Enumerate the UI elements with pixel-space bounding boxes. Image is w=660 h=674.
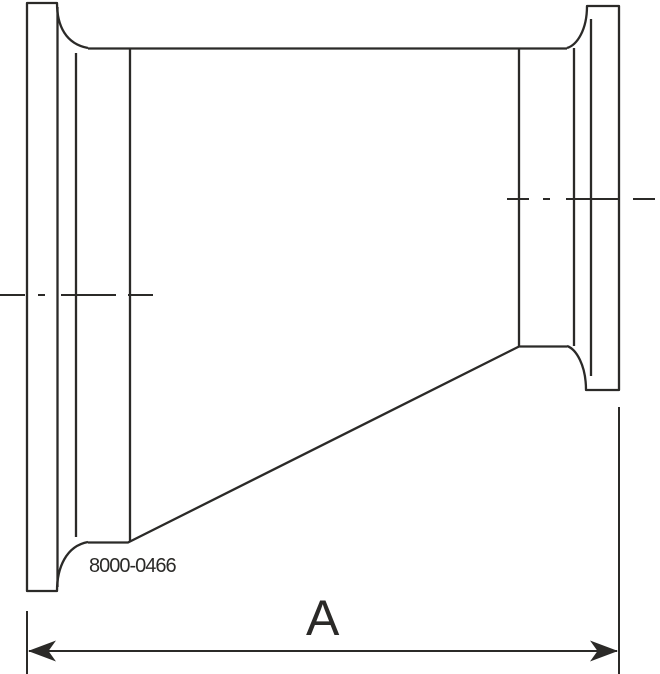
- dimension-a-label: A: [306, 590, 340, 646]
- body-bottom-line: [88, 347, 567, 543]
- reducer-technical-drawing: 8000-0466 A: [0, 0, 660, 674]
- part-number-label: 8000-0466: [89, 555, 177, 577]
- drawing-canvas: 8000-0466 A: [0, 0, 660, 674]
